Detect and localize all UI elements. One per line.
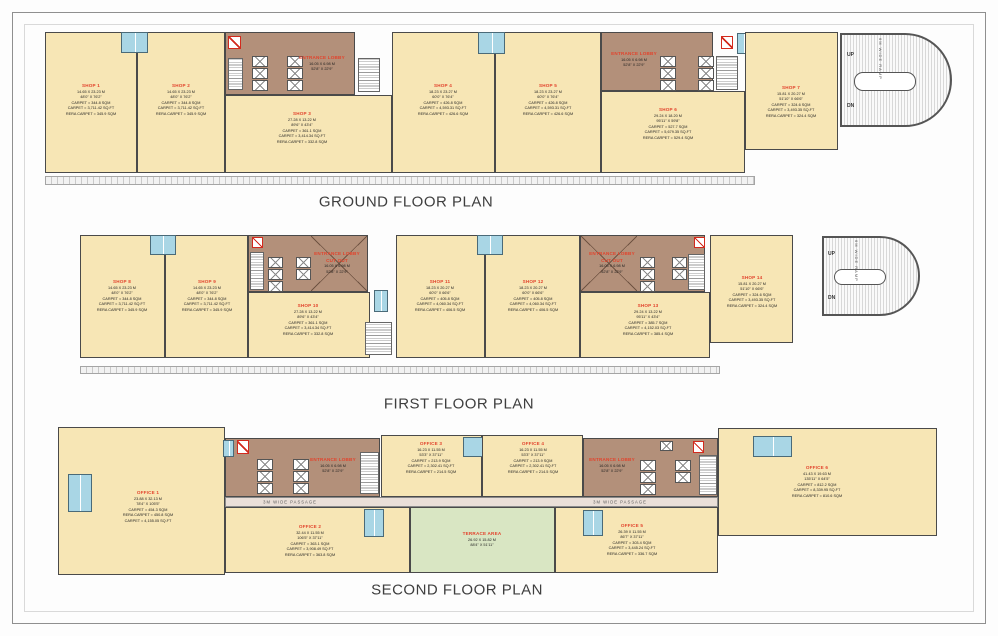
first-floor-title: FIRST FLOOR PLAN <box>384 396 534 413</box>
room-shop-5 <box>495 32 601 173</box>
lift-icon <box>640 460 656 471</box>
lift-icon <box>698 56 714 67</box>
toilet-icon <box>121 32 148 53</box>
lift-icon <box>293 483 309 494</box>
toilet-icon <box>68 474 92 512</box>
pavement-hatch <box>80 366 720 374</box>
room-office-6 <box>718 428 937 536</box>
ramp-down-label: DN <box>828 295 835 301</box>
ramp-width-label: 6M WIDE RAMP <box>854 240 859 282</box>
lift-icon <box>257 471 273 482</box>
ramp-up-label: UP <box>847 52 854 58</box>
lift-icon <box>660 80 676 91</box>
room-shop-6 <box>601 91 745 173</box>
lift-icon <box>287 80 303 91</box>
lift-icon <box>640 257 655 268</box>
fire-shaft-icon <box>694 237 705 248</box>
room-office-4 <box>482 435 583 497</box>
lift-icon <box>660 441 673 451</box>
room-office-5 <box>555 507 718 573</box>
toilet-icon <box>478 32 505 54</box>
room-shop-14 <box>710 235 793 343</box>
ground-floor-title: GROUND FLOOR PLAN <box>319 194 493 211</box>
room-shop-13 <box>580 292 710 358</box>
stairs-icon <box>228 58 243 90</box>
stairs-icon <box>688 254 705 290</box>
stairs-icon <box>250 252 264 290</box>
lift-icon <box>252 56 268 67</box>
toilet-icon <box>753 436 792 457</box>
lift-icon <box>257 459 273 470</box>
ramp-island <box>854 72 916 91</box>
lift-icon <box>287 56 303 67</box>
lift-icon <box>287 68 303 79</box>
room-shop-3 <box>225 95 392 173</box>
lift-icon <box>640 281 655 292</box>
room-shop-1 <box>45 32 137 173</box>
toilet-icon <box>583 510 603 536</box>
lift-icon <box>268 269 283 280</box>
passage-label: 3M WIDE PASSAGE <box>263 500 317 505</box>
lift-icon <box>640 269 655 280</box>
lift-icon <box>675 460 691 471</box>
room-entrance-lobby-2 <box>601 32 713 91</box>
toilet-icon <box>374 290 388 312</box>
room-shop-10 <box>248 292 370 358</box>
ramp-down-label: DN <box>847 103 854 109</box>
pavement-hatch <box>45 176 755 185</box>
lift-icon <box>672 257 687 268</box>
lift-icon <box>640 472 656 483</box>
fire-shaft-icon <box>693 441 704 453</box>
room-shop-7 <box>745 32 838 150</box>
fire-shaft-icon <box>721 36 733 49</box>
stairs-icon <box>716 56 738 90</box>
room-shop-9 <box>165 235 248 358</box>
lift-icon <box>672 269 687 280</box>
fire-shaft-icon <box>237 440 249 454</box>
lift-icon <box>640 484 656 495</box>
toilet-icon <box>150 235 176 255</box>
lift-icon <box>675 472 691 483</box>
lift-icon <box>296 269 311 280</box>
void-cross-icon <box>581 236 637 291</box>
lift-icon <box>293 471 309 482</box>
lift-icon <box>257 483 273 494</box>
toilet-icon <box>364 509 384 537</box>
ramp-up-label: UP <box>828 251 835 257</box>
toilet-icon <box>223 440 234 457</box>
passage-label: 3M WIDE PASSAGE <box>593 500 647 505</box>
lift-icon <box>698 68 714 79</box>
room-shop-2 <box>137 32 225 173</box>
lift-icon <box>293 459 309 470</box>
fire-shaft-icon <box>252 237 263 248</box>
lift-icon <box>252 80 268 91</box>
stairs-icon <box>358 58 380 92</box>
lift-icon <box>252 68 268 79</box>
stairs-icon <box>699 455 717 495</box>
lift-icon <box>660 56 676 67</box>
ramp: UP DN 6M WIDE RAMP <box>822 236 920 316</box>
stairs-icon <box>365 322 392 355</box>
ramp-width-label: 6M WIDE RAMP <box>878 38 883 80</box>
lift-icon <box>268 257 283 268</box>
fire-shaft-icon <box>228 36 241 49</box>
toilet-icon <box>477 235 503 255</box>
room-shop-11 <box>396 235 485 358</box>
lift-icon <box>698 80 714 91</box>
void-cross-icon <box>311 236 367 291</box>
terrace-area <box>410 507 555 573</box>
second-floor-title: SECOND FLOOR PLAN <box>371 582 543 599</box>
lift-icon <box>296 257 311 268</box>
floor-plan-sheet: UP DN 6M WIDE RAMP SHOP 114.65 X 23.23 M… <box>0 0 998 636</box>
ramp: UP DN 6M WIDE RAMP <box>840 33 952 127</box>
ramp-island <box>834 269 886 285</box>
stairs-icon <box>360 452 379 494</box>
lift-icon <box>268 281 283 292</box>
lift-icon <box>660 68 676 79</box>
